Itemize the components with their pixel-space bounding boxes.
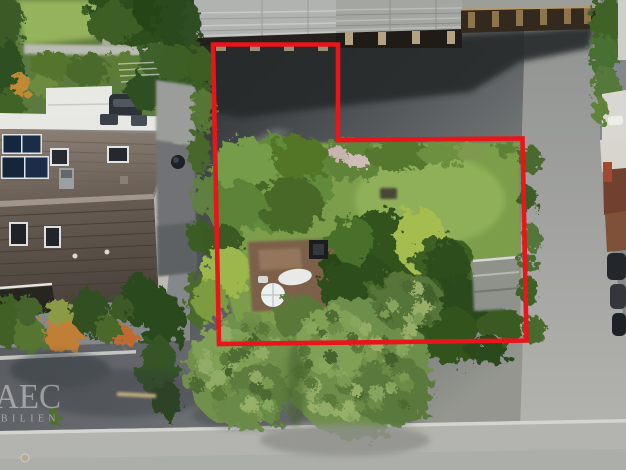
svg-text:BILIEN: BILIEN (1, 413, 60, 425)
svg-text:AEC: AEC (0, 377, 61, 416)
